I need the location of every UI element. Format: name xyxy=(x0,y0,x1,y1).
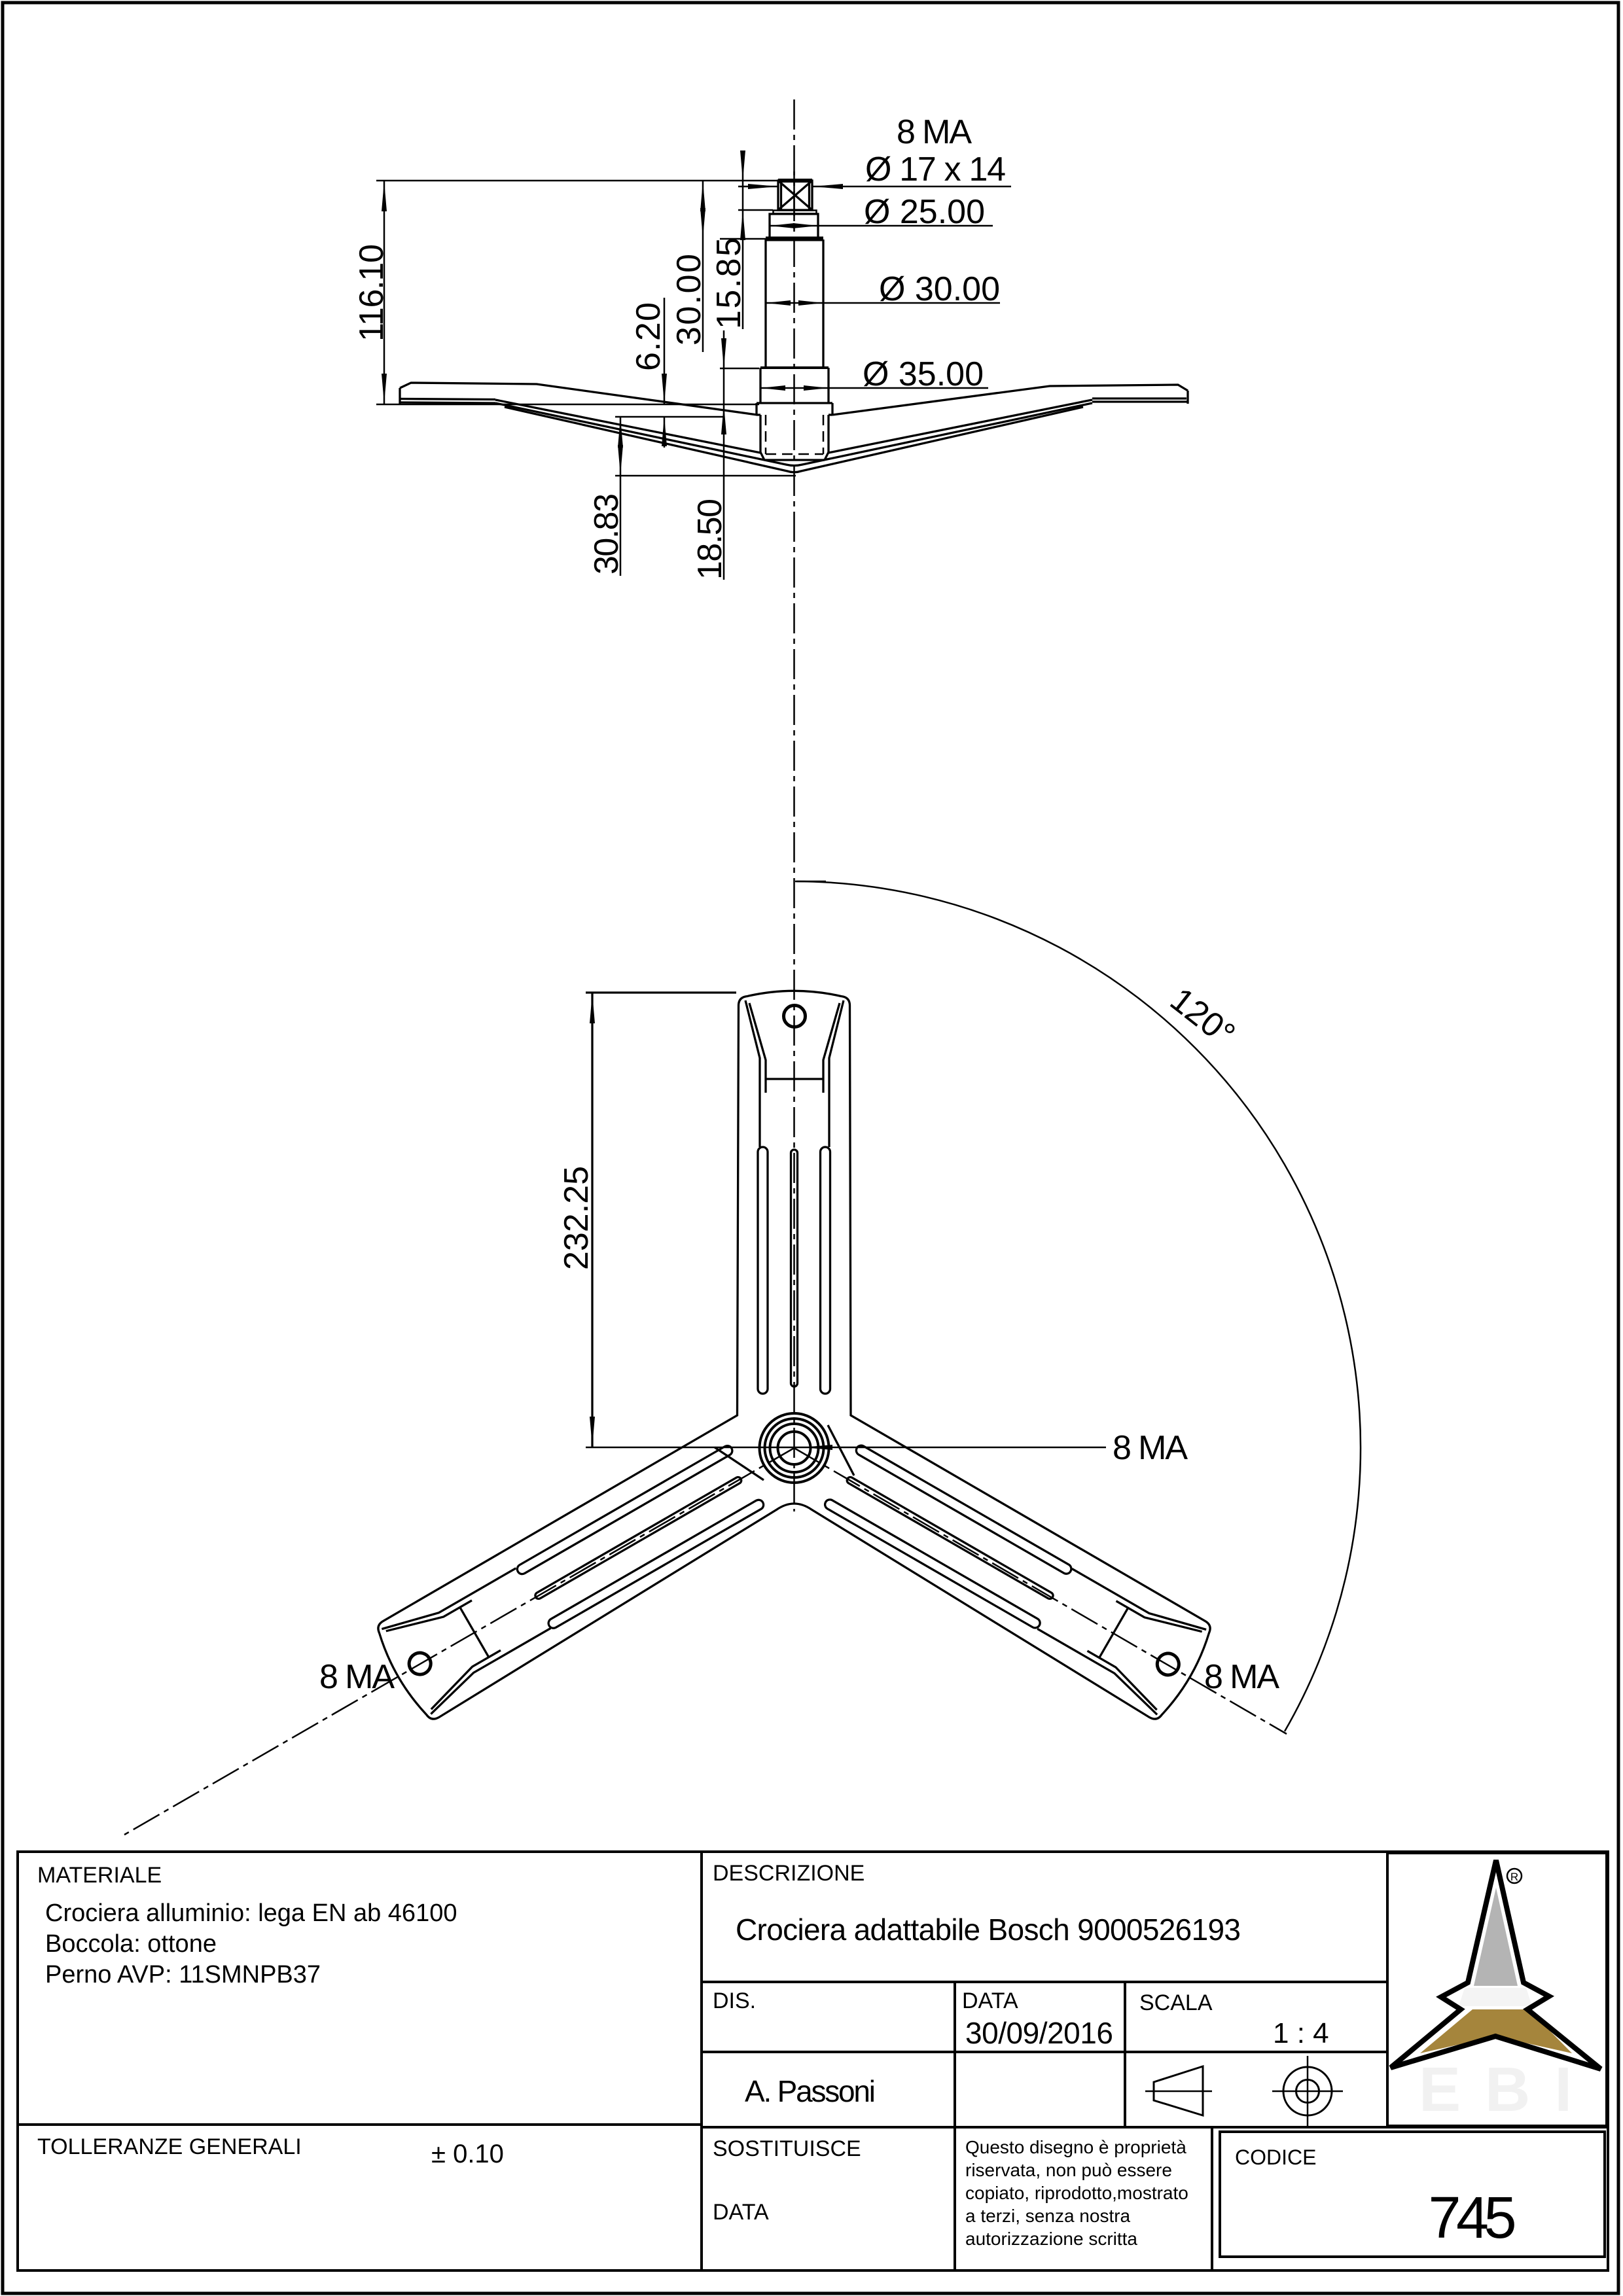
svg-text:6.20: 6.20 xyxy=(630,302,668,371)
svg-text:autorizzazione scritta: autorizzazione scritta xyxy=(965,2229,1137,2249)
svg-text:TOLLERANZE GENERALI: TOLLERANZE GENERALI xyxy=(37,2134,302,2159)
svg-text:R: R xyxy=(1510,1871,1518,1883)
svg-text:copiato, riprodotto,mostrato: copiato, riprodotto,mostrato xyxy=(965,2183,1188,2203)
svg-text:a terzi, senza nostra: a terzi, senza nostra xyxy=(965,2206,1131,2226)
svg-text:8 MA: 8 MA xyxy=(1204,1658,1279,1696)
svg-text:1 : 4: 1 : 4 xyxy=(1273,2017,1329,2049)
svg-text:Crociera alluminio: lega EN ab: Crociera alluminio: lega EN ab 46100 xyxy=(45,1899,457,1927)
svg-text:Ø 30.00: Ø 30.00 xyxy=(879,270,1000,308)
svg-text:SCALA: SCALA xyxy=(1139,1990,1213,2015)
svg-text:Perno AVP: 11SMNPB37: Perno AVP: 11SMNPB37 xyxy=(45,1961,321,1988)
svg-text:A. Passoni: A. Passoni xyxy=(745,2074,876,2108)
svg-text:8 MA: 8 MA xyxy=(319,1658,395,1696)
svg-text:232.25: 232.25 xyxy=(558,1166,596,1270)
svg-text:± 0.10: ± 0.10 xyxy=(431,2140,504,2168)
svg-text:8 MA: 8 MA xyxy=(897,113,972,151)
svg-text:DIS.: DIS. xyxy=(713,1988,756,2013)
svg-text:DATA: DATA xyxy=(713,2200,769,2225)
svg-text:SOSTITUISCE: SOSTITUISCE xyxy=(713,2136,861,2161)
svg-text:30.00: 30.00 xyxy=(670,254,708,345)
svg-text:Ø 35.00: Ø 35.00 xyxy=(863,355,984,393)
svg-text:DESCRIZIONE: DESCRIZIONE xyxy=(713,1861,865,1886)
svg-text:15.85: 15.85 xyxy=(710,238,748,329)
svg-text:riservata, non può essere: riservata, non può essere xyxy=(965,2160,1172,2180)
svg-text:30.83: 30.83 xyxy=(588,493,626,574)
svg-text:18.50: 18.50 xyxy=(691,499,729,580)
svg-text:MATERIALE: MATERIALE xyxy=(37,1863,162,1888)
svg-text:Questo disegno è proprietà: Questo disegno è proprietà xyxy=(965,2137,1186,2157)
svg-text:DATA: DATA xyxy=(962,1988,1018,2013)
svg-text:Ø 17 x 14: Ø 17 x 14 xyxy=(865,150,1006,188)
svg-text:8 MA: 8 MA xyxy=(1113,1429,1188,1467)
svg-text:116.10: 116.10 xyxy=(353,244,391,342)
svg-text:30/09/2016: 30/09/2016 xyxy=(965,2016,1113,2050)
svg-text:745: 745 xyxy=(1429,2185,1517,2251)
svg-text:Boccola: ottone: Boccola: ottone xyxy=(45,1930,217,1958)
svg-text:Ø 25.00: Ø 25.00 xyxy=(864,193,985,231)
svg-text:Crociera adattabile Bosch 9000: Crociera adattabile Bosch 9000526193 xyxy=(736,1913,1241,1947)
svg-text:CODICE: CODICE xyxy=(1235,2146,1316,2169)
